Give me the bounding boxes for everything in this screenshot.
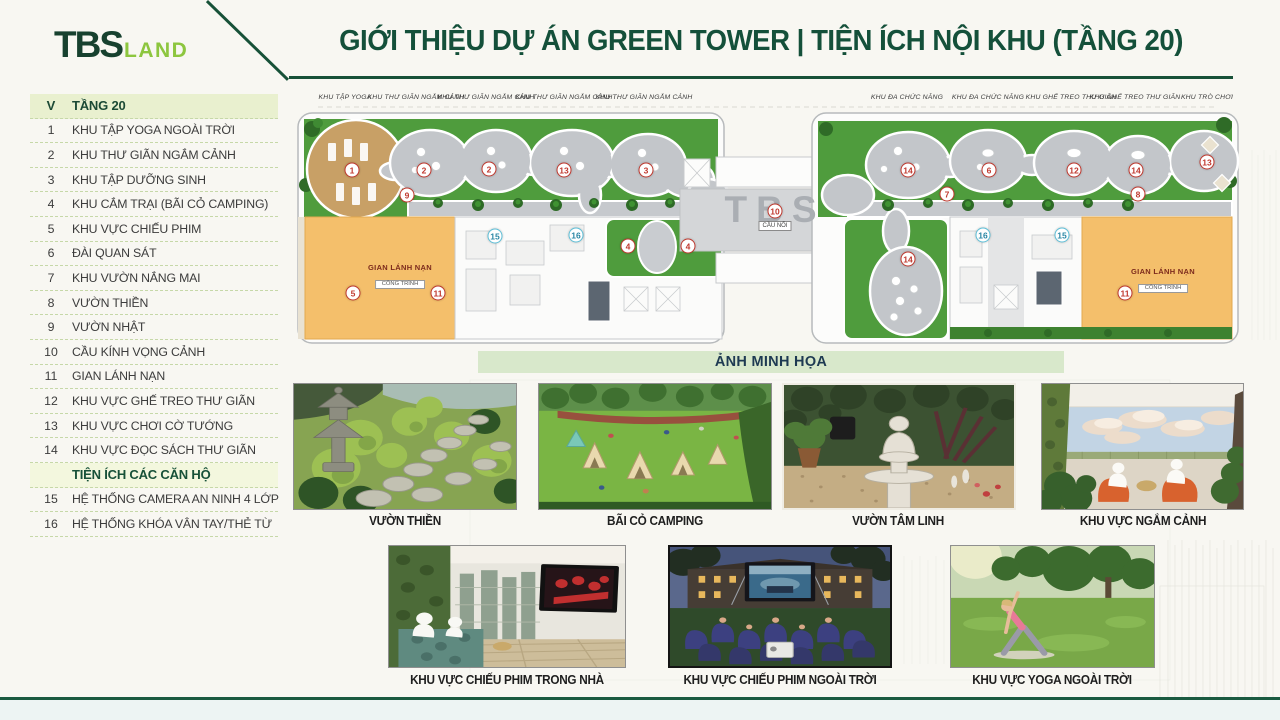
plan-marker: 14 bbox=[1129, 163, 1144, 178]
logo-land-text: LAND bbox=[124, 39, 188, 63]
plan-marker: 9 bbox=[400, 188, 415, 203]
footer-band bbox=[0, 700, 1280, 720]
legend-row: 14KHU VỰC ĐỌC SÁCH THƯ GIÃN bbox=[30, 438, 278, 463]
bridge-label: CẦU NỐI bbox=[758, 221, 791, 231]
indoor-cinema-illustration bbox=[389, 546, 625, 667]
legend-row-number: 3 bbox=[30, 173, 72, 187]
plan-marker: 13 bbox=[1200, 155, 1215, 170]
plan-marker: 15 bbox=[488, 229, 503, 244]
plan-marker: 2 bbox=[482, 162, 497, 177]
plan-marker: 8 bbox=[1131, 187, 1146, 202]
plan-marker: 2 bbox=[417, 163, 432, 178]
illustration-banner: ẢNH MINH HỌA bbox=[478, 351, 1064, 373]
legend-row-label: KHU VỰC ĐỌC SÁCH THƯ GIÃN bbox=[72, 443, 278, 457]
legend-rows-1: 1KHU TẬP YOGA NGOÀI TRỜI2KHU THƯ GIÃN NG… bbox=[30, 119, 278, 463]
legend-row-label: GIAN LÁNH NẠN bbox=[72, 369, 278, 383]
photo-indoor-cinema bbox=[388, 545, 626, 668]
legend-row-number: 6 bbox=[30, 246, 72, 260]
legend-row-number: 11 bbox=[30, 369, 72, 383]
legend-row: 10CẦU KÍNH VỌNG CẢNH bbox=[30, 340, 278, 365]
caption-outdoor-cinema: KHU VỰC CHIẾU PHIM NGOÀI TRỜI bbox=[639, 673, 921, 687]
legend-row: 6ĐÀI QUAN SÁT bbox=[30, 242, 278, 267]
shelter-label-left: GIAN LÁNH NẠN CÔNG TRÌNH bbox=[368, 263, 432, 290]
legend-header-no: V bbox=[30, 98, 72, 113]
plan-marker: 11 bbox=[1118, 286, 1133, 301]
legend-row-label: KHU THƯ GIÃN NGẮM CẢNH bbox=[72, 148, 278, 162]
logo-tbs-text: TBS bbox=[54, 24, 122, 66]
legend-row-label: HỆ THỐNG KHÓA VÂN TAY/THẺ TỪ bbox=[72, 517, 278, 531]
caption-indoor-cinema: KHU VỰC CHIẾU PHIM TRONG NHÀ bbox=[366, 673, 648, 687]
legend-row-number: 9 bbox=[30, 320, 72, 334]
plan-zone-label: KHU TRÒ CHƠI bbox=[1181, 94, 1233, 101]
legend-row-label: KHU VỰC CHIẾU PHIM bbox=[72, 222, 278, 236]
plan-zone-label: KHU THƯ GIÃN NGẮM CẢNH bbox=[595, 94, 692, 101]
photo-view-lounge bbox=[1041, 383, 1244, 510]
legend-row-label: KHU TẬP YOGA NGOÀI TRỜI bbox=[72, 123, 278, 137]
plan-marker: 14 bbox=[901, 252, 916, 267]
plan-zone-label: KHU ĐA CHỨC NĂNG bbox=[952, 94, 1024, 101]
footer-rule bbox=[0, 697, 1280, 700]
legend-row: 15HỆ THỐNG CAMERA AN NINH 4 LỚP bbox=[30, 488, 278, 513]
legend-row-label: KHU TẬP DƯỠNG SINH bbox=[72, 173, 278, 187]
legend-row-label: KHU CẮM TRẠI (BÃI CỎ CAMPING) bbox=[72, 197, 278, 211]
plan-marker: 15 bbox=[1055, 228, 1070, 243]
legend-row: 13KHU VỰC CHƠI CỜ TƯỚNG bbox=[30, 414, 278, 439]
legend-row: 16HỆ THỐNG KHÓA VÂN TAY/THẺ TỪ bbox=[30, 512, 278, 537]
photo-camping-lawn bbox=[538, 383, 772, 510]
plan-marker: 5 bbox=[346, 286, 361, 301]
plan-marker: 6 bbox=[982, 163, 997, 178]
legend-rows-2: 15HỆ THỐNG CAMERA AN NINH 4 LỚP16HỆ THỐN… bbox=[30, 488, 278, 537]
caption-outdoor-yoga: KHU VỰC YOGA NGOÀI TRỜI bbox=[911, 673, 1193, 687]
page-title: GIỚI THIỆU DỰ ÁN GREEN TOWER | TIỆN ÍCH … bbox=[314, 25, 1209, 58]
plan-marker: 7 bbox=[940, 187, 955, 202]
legend-row-label: KHU VỰC CHƠI CỜ TƯỚNG bbox=[72, 419, 278, 433]
plan-marker: 4 bbox=[681, 239, 696, 254]
plan-zone-label: KHU ĐA CHỨC NĂNG bbox=[871, 94, 943, 101]
legend-row: 7KHU VƯỜN NẮNG MAI bbox=[30, 266, 278, 291]
legend-row: 12KHU VỰC GHẾ TREO THƯ GIÃN bbox=[30, 389, 278, 414]
legend-row: 5KHU VỰC CHIẾU PHIM bbox=[30, 217, 278, 242]
legend-row-number: 5 bbox=[30, 222, 72, 236]
legend: V TẦNG 20 1KHU TẬP YOGA NGOÀI TRỜI2KHU T… bbox=[30, 94, 278, 537]
caption-view-lounge: KHU VỰC NGẮM CẢNH bbox=[1002, 514, 1280, 528]
zen-garden-illustration bbox=[294, 384, 516, 509]
legend-row-number: 2 bbox=[30, 148, 72, 162]
legend-row: 3KHU TẬP DƯỠNG SINH bbox=[30, 168, 278, 193]
buddha-fountain-illustration bbox=[784, 385, 1014, 508]
legend-row: 2KHU THƯ GIÃN NGẮM CẢNH bbox=[30, 143, 278, 168]
floor-plan: TBS CẦU NỐI GIAN LÁNH NẠN CÔNG TRÌNH GIA… bbox=[288, 95, 1248, 347]
plan-marker: 1 bbox=[345, 163, 360, 178]
legend-row-number: 14 bbox=[30, 443, 72, 457]
legend-row-label: CẦU KÍNH VỌNG CẢNH bbox=[72, 345, 278, 359]
legend-row-number: 1 bbox=[30, 123, 72, 137]
legend-row-number: 10 bbox=[30, 345, 72, 359]
caption-spirit-garden: VƯỜN TÂM LINH bbox=[757, 514, 1039, 528]
legend-subheader: TIỆN ÍCH CÁC CĂN HỘ bbox=[30, 463, 278, 488]
plan-marker: 16 bbox=[976, 228, 991, 243]
plan-marker: 11 bbox=[431, 286, 446, 301]
legend-row-label: HỆ THỐNG CAMERA AN NINH 4 LỚP bbox=[72, 492, 279, 506]
camping-lawn-illustration bbox=[539, 384, 771, 509]
shelter-label-right: GIAN LÁNH NẠN CÔNG TRÌNH bbox=[1131, 267, 1195, 294]
plan-marker: 13 bbox=[557, 163, 572, 178]
header-underline-rule bbox=[289, 76, 1233, 79]
legend-row-number: 8 bbox=[30, 296, 72, 310]
caption-camping-lawn: BÃI CỎ CAMPING bbox=[514, 514, 796, 528]
plan-zone-label: KHU TẬP YOGA bbox=[318, 94, 371, 101]
photo-outdoor-yoga bbox=[950, 545, 1155, 668]
sky-lounge-illustration bbox=[1042, 384, 1243, 509]
legend-row-number: 12 bbox=[30, 394, 72, 408]
legend-header-label: TẦNG 20 bbox=[72, 98, 278, 113]
plan-marker: 10 bbox=[768, 204, 783, 219]
photo-outdoor-cinema bbox=[668, 545, 892, 668]
outdoor-cinema-illustration bbox=[670, 547, 890, 666]
plan-marker: 16 bbox=[569, 228, 584, 243]
legend-row-label: KHU VƯỜN NẮNG MAI bbox=[72, 271, 278, 285]
legend-row-label: VƯỜN THIỀN bbox=[72, 296, 278, 310]
legend-row-number: 13 bbox=[30, 419, 72, 433]
plan-marker: 4 bbox=[621, 239, 636, 254]
photo-zen-garden bbox=[293, 383, 517, 510]
legend-row: 1KHU TẬP YOGA NGOÀI TRỜI bbox=[30, 119, 278, 144]
tbs-land-logo: TBS LAND bbox=[54, 24, 188, 66]
legend-row-label: VƯỜN NHẬT bbox=[72, 320, 278, 334]
legend-row: 11GIAN LÁNH NẠN bbox=[30, 365, 278, 390]
legend-row-number: 4 bbox=[30, 197, 72, 211]
photo-spirit-garden bbox=[782, 383, 1016, 510]
legend-row-label: ĐÀI QUAN SÁT bbox=[72, 246, 278, 260]
legend-row-number: 16 bbox=[30, 517, 72, 531]
legend-row-number: 15 bbox=[30, 492, 72, 506]
page: TBS LAND GIỚI THIỆU DỰ ÁN GREEN TOWER | … bbox=[0, 0, 1280, 720]
caption-zen-garden: VƯỜN THIỀN bbox=[264, 514, 546, 528]
legend-row: 4KHU CẮM TRẠI (BÃI CỎ CAMPING) bbox=[30, 192, 278, 217]
legend-row: 8VƯỜN THIỀN bbox=[30, 291, 278, 316]
plan-marker: 3 bbox=[639, 163, 654, 178]
legend-header: V TẦNG 20 bbox=[30, 94, 278, 119]
outdoor-yoga-illustration bbox=[951, 546, 1154, 667]
legend-row-number: 7 bbox=[30, 271, 72, 285]
legend-row-label: KHU VỰC GHẾ TREO THƯ GIÃN bbox=[72, 394, 278, 408]
legend-row: 9VƯỜN NHẬT bbox=[30, 315, 278, 340]
plan-marker: 14 bbox=[901, 163, 916, 178]
plan-marker: 12 bbox=[1067, 163, 1082, 178]
plan-zone-label: KHU GHẾ TREO THƯ GIÃN bbox=[1090, 94, 1181, 101]
